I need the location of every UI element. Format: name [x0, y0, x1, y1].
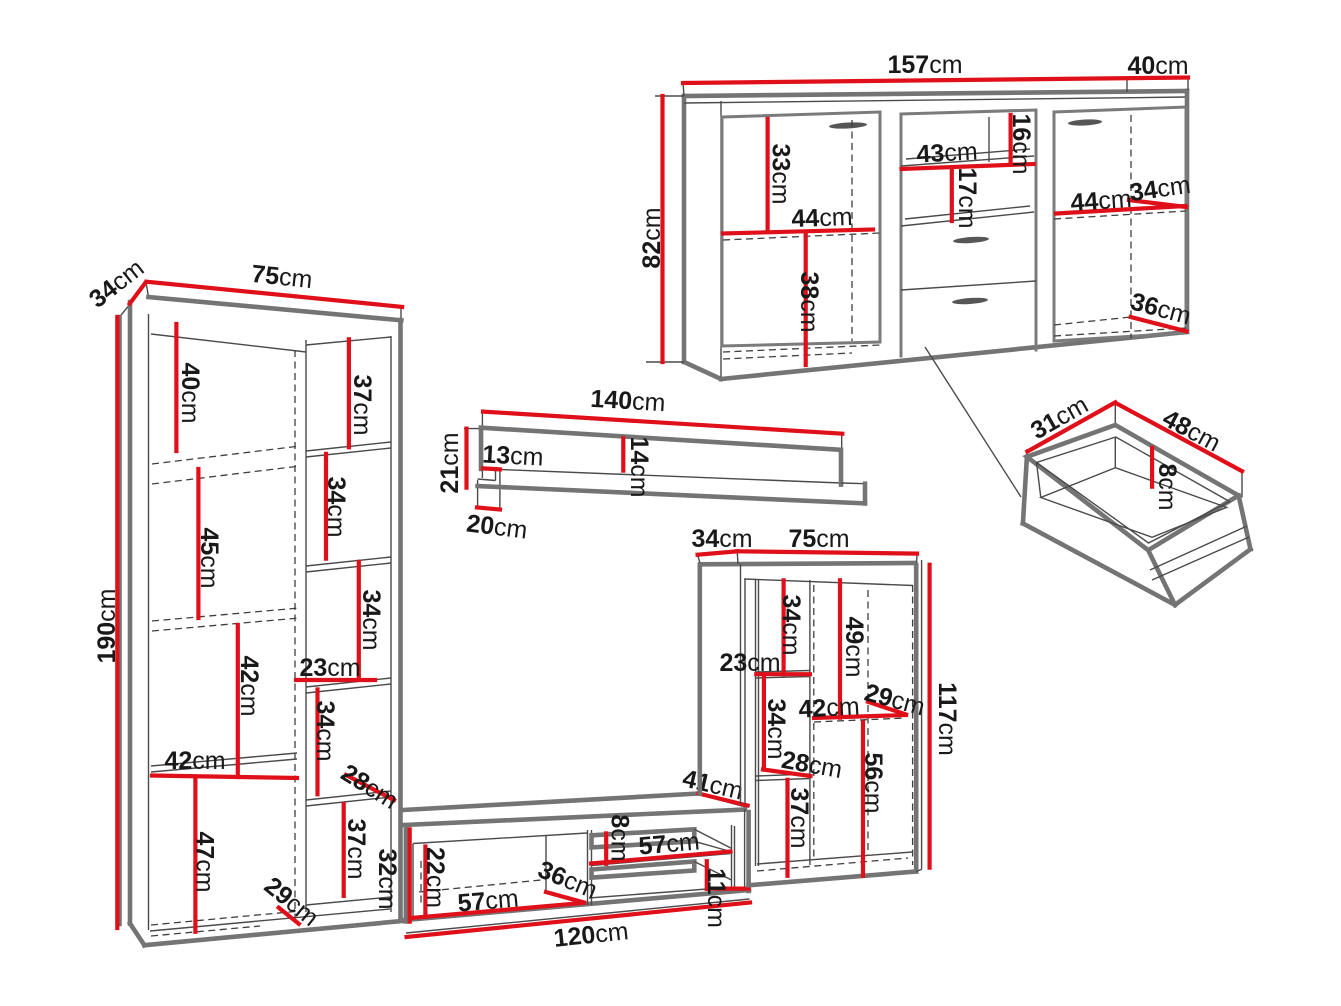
svg-text:21cm: 21cm	[436, 432, 464, 493]
svg-text:57cm: 57cm	[456, 884, 519, 917]
svg-text:42cm: 42cm	[164, 747, 225, 775]
svg-text:37cm: 37cm	[785, 787, 813, 848]
svg-text:22cm: 22cm	[421, 847, 449, 908]
svg-text:14cm: 14cm	[625, 436, 653, 497]
svg-text:56cm: 56cm	[859, 752, 887, 813]
svg-text:37cm: 37cm	[348, 374, 376, 435]
svg-text:33cm: 33cm	[767, 143, 795, 204]
svg-text:8cm: 8cm	[1153, 463, 1181, 510]
svg-text:47cm: 47cm	[191, 831, 219, 892]
svg-text:8cm: 8cm	[606, 814, 634, 861]
svg-text:40cm: 40cm	[176, 362, 204, 423]
svg-text:49cm: 49cm	[840, 616, 868, 677]
svg-text:190cm: 190cm	[93, 588, 121, 663]
svg-text:34cm: 34cm	[322, 476, 350, 537]
svg-text:32cm: 32cm	[373, 848, 401, 909]
svg-text:17cm: 17cm	[953, 167, 981, 228]
svg-text:37cm: 37cm	[342, 818, 370, 879]
svg-text:23cm: 23cm	[719, 649, 780, 677]
svg-text:34cm: 34cm	[691, 525, 752, 553]
svg-text:57cm: 57cm	[637, 827, 700, 860]
svg-text:13cm: 13cm	[482, 440, 545, 471]
svg-text:140cm: 140cm	[590, 385, 667, 418]
svg-text:42cm: 42cm	[798, 692, 861, 723]
svg-text:117cm: 117cm	[933, 682, 961, 756]
svg-text:44cm: 44cm	[1070, 185, 1133, 217]
svg-text:34cm: 34cm	[777, 594, 805, 655]
svg-text:11cm: 11cm	[702, 868, 730, 928]
svg-text:44cm: 44cm	[791, 203, 853, 233]
svg-text:82cm: 82cm	[638, 207, 666, 268]
svg-text:40cm: 40cm	[1127, 52, 1188, 80]
svg-text:42cm: 42cm	[235, 655, 263, 716]
svg-text:16cm: 16cm	[1007, 113, 1035, 174]
svg-text:43cm: 43cm	[916, 137, 979, 168]
svg-text:75cm: 75cm	[788, 525, 849, 553]
svg-text:23cm: 23cm	[299, 654, 360, 682]
svg-text:34cm: 34cm	[311, 700, 339, 761]
svg-text:45cm: 45cm	[195, 527, 223, 588]
svg-text:38cm: 38cm	[795, 271, 823, 332]
svg-text:34cm: 34cm	[357, 589, 385, 650]
svg-text:157cm: 157cm	[887, 51, 962, 79]
